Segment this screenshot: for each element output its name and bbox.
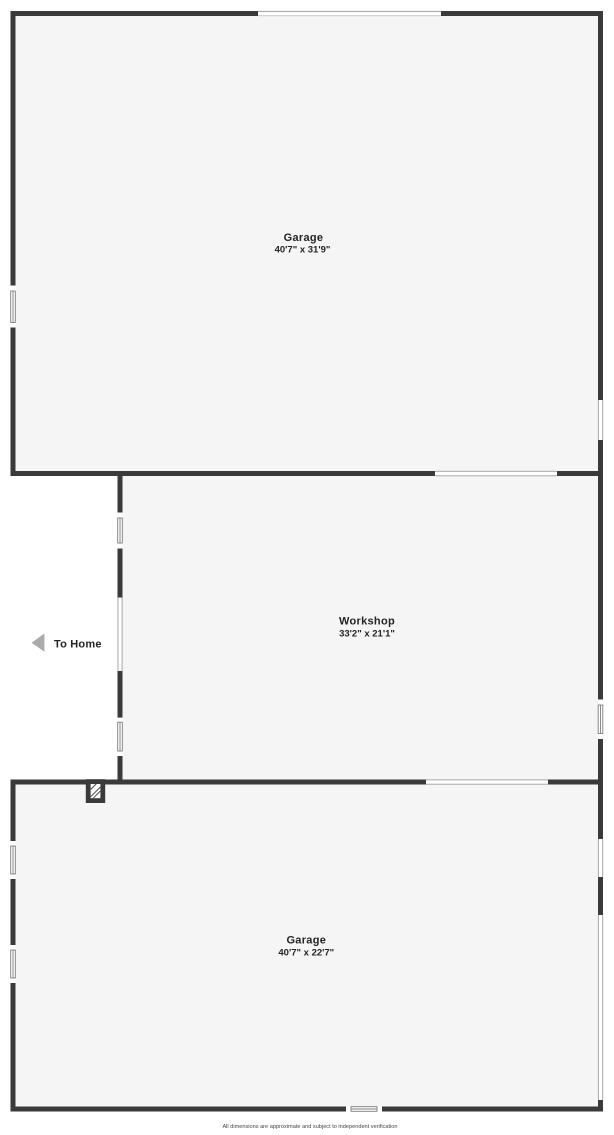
svg-text:All dimensions are approximate: All dimensions are approximate and subje…: [222, 1124, 397, 1130]
svg-text:Workshop: Workshop: [339, 616, 395, 628]
svg-text:To Home: To Home: [54, 638, 102, 650]
svg-text:33'2" x 21'1": 33'2" x 21'1": [339, 628, 395, 639]
svg-text:40'7" x 22'7": 40'7" x 22'7": [278, 947, 334, 958]
svg-text:40'7" x 31'9": 40'7" x 31'9": [275, 245, 331, 256]
svg-text:Garage: Garage: [284, 232, 324, 244]
svg-text:Garage: Garage: [286, 935, 326, 947]
